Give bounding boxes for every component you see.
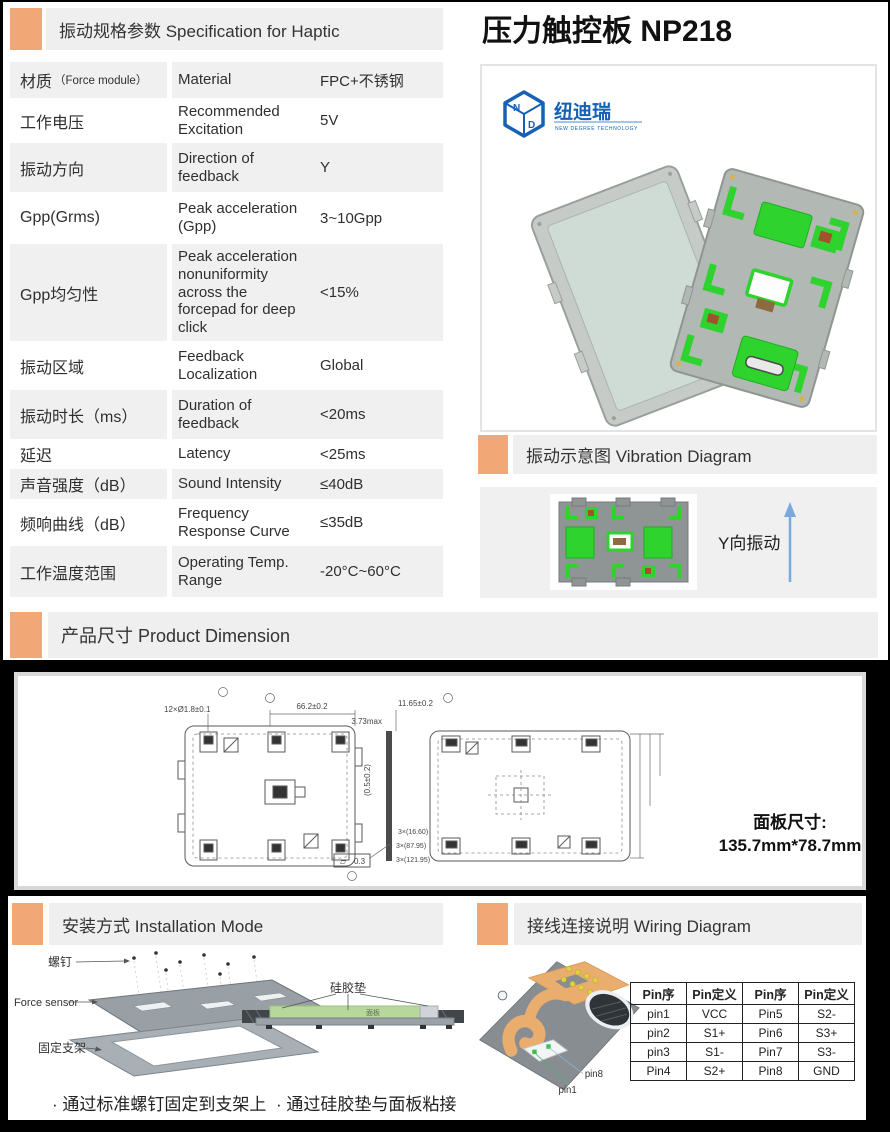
- pin-cell: VCC: [687, 1005, 743, 1024]
- silicone-bonding-image: [242, 1006, 464, 1029]
- pin-cell: GND: [799, 1062, 855, 1081]
- vibration-section-title: 振动示意图 Vibration Diagram: [513, 435, 877, 474]
- pin-col-header: Pin序: [743, 983, 799, 1005]
- company-logo: N D 纽迪瑞 NEW DEGREE TECHNOLOGY: [505, 92, 642, 136]
- spec-cn: 频响曲线（dB）: [20, 511, 136, 535]
- spec-value: 5V: [306, 112, 443, 129]
- datasheet-page: 振动规格参数 Specification for Haptic 材质（Force…: [0, 0, 890, 1132]
- dim-label: 3×(16.60): [398, 829, 428, 836]
- table-row: 延迟 Latency<25ms: [10, 439, 443, 469]
- panel-size-value: 135.7mm*78.7mm: [719, 836, 862, 855]
- accent-square: [10, 612, 42, 658]
- pin-cell: S3-: [799, 1043, 855, 1062]
- installation-caption-right: · 通过硅胶垫与面板粘接: [276, 1090, 456, 1115]
- spec-en: Peak acceleration (Gpp): [172, 200, 306, 235]
- pin8-label: pin8: [585, 1069, 603, 1080]
- installation-section-title: 安装方式 Installation Mode: [49, 903, 443, 945]
- spec-cn-note: （Force module）: [54, 72, 147, 88]
- spec-en: Recommended Excitation: [172, 103, 306, 138]
- spec-cn: Gpp均匀性: [20, 281, 98, 305]
- dimension-section-title: 产品尺寸 Product Dimension: [48, 612, 878, 658]
- spec-cn: 声音强度（dB）: [20, 472, 136, 496]
- spec-value: ≤35dB: [306, 514, 443, 531]
- pin-col-header: Pin定义: [799, 983, 855, 1005]
- accent-square: [10, 8, 42, 50]
- pin-definition-table: Pin序 Pin定义 Pin序 Pin定义 pin1 VCC Pin5 S2- …: [630, 982, 855, 1081]
- spec-value: FPC+不锈钢: [306, 70, 443, 91]
- pin-table-row: Pin4 S2+ Pin8 GND: [631, 1062, 855, 1081]
- spec-en: Duration of feedback: [172, 397, 306, 432]
- dim-label: 3.73max: [351, 717, 382, 726]
- pin-cell: S1+: [687, 1024, 743, 1043]
- spec-value: Global: [306, 357, 443, 374]
- pin-table-row: pin1 VCC Pin5 S2-: [631, 1005, 855, 1024]
- dimension-section-header: 产品尺寸 Product Dimension: [10, 612, 878, 658]
- dimension-drawing: 66.2±0.2 12×Ø1.8±0.1 3.73max (0.5±0.2) 1…: [18, 676, 862, 886]
- accent-square: [12, 903, 43, 945]
- pin-cell: Pin8: [743, 1062, 799, 1081]
- vibration-section-header: 振动示意图 Vibration Diagram: [478, 435, 877, 474]
- spec-cn: 振动方向: [20, 156, 84, 180]
- pin-cell: S2-: [799, 1005, 855, 1024]
- dim-label: 0.3: [354, 857, 366, 866]
- spec-cn: Gpp(Grms): [20, 209, 100, 227]
- pin-table-header-row: Pin序 Pin定义 Pin序 Pin定义: [631, 983, 855, 1005]
- bottom-sections: 安装方式 Installation Mode 接线连接说明 Wiring Dia…: [8, 896, 866, 1120]
- wiring-photo: pin8 pin1: [478, 960, 640, 1102]
- spec-value: 3~10Gpp: [306, 210, 443, 227]
- spec-en: Material: [172, 71, 306, 89]
- table-row: 频响曲线（dB） Frequency Response Curve≤35dB: [10, 499, 443, 546]
- bracket-label: 固定支架: [38, 1040, 86, 1055]
- pin-col-header: Pin序: [631, 983, 687, 1005]
- logo-en-text: NEW DEGREE TECHNOLOGY: [555, 126, 638, 132]
- spec-cn: 材质: [20, 68, 52, 92]
- spec-value: Y: [306, 159, 443, 176]
- table-row: 声音强度（dB） Sound Intensity≤40dB: [10, 469, 443, 499]
- table-row: Gpp均匀性 Peak acceleration nonuniformity a…: [10, 244, 443, 341]
- table-row: 工作温度范围 Operating Temp. Range-20°C~60°C: [10, 546, 443, 597]
- dim-label: 66.2±0.2: [296, 702, 328, 711]
- spec-en: Peak acceleration nonuniformity across t…: [172, 248, 306, 336]
- force-sensor-label: Force sensor: [14, 997, 79, 1009]
- logo-letter-d: D: [528, 120, 535, 131]
- spec-value: ≤40dB: [306, 476, 443, 493]
- table-row: 振动方向 Direction of feedbackY: [10, 143, 443, 192]
- product-image-box: N D 纽迪瑞 NEW DEGREE TECHNOLOGY: [480, 64, 877, 432]
- spec-en: Latency: [172, 445, 306, 463]
- dim-label: 3×(87.95): [396, 843, 426, 850]
- pin-cell: Pin6: [743, 1024, 799, 1043]
- dim-label: (0.5±0.2): [363, 764, 372, 796]
- pin-cell: S3+: [799, 1024, 855, 1043]
- spec-en: Frequency Response Curve: [172, 505, 306, 540]
- installation-diagram: 螺钉 Force sensor 固定支架 硅胶: [14, 948, 464, 1088]
- pin-cell: S1-: [687, 1043, 743, 1062]
- logo-cn-text: 纽迪瑞: [554, 100, 611, 123]
- spec-value: -20°C~60°C: [306, 563, 443, 580]
- dimension-drawing-box: 66.2±0.2 12×Ø1.8±0.1 3.73max (0.5±0.2) 1…: [14, 672, 866, 890]
- table-row: 材质（Force module） MaterialFPC+不锈钢: [10, 62, 443, 98]
- wiring-section-title: 接线连接说明 Wiring Diagram: [514, 903, 862, 945]
- table-row: 工作电压 Recommended Excitation5V: [10, 98, 443, 143]
- y-direction-arrow-icon: [784, 502, 796, 582]
- spec-en: Feedback Localization: [172, 348, 306, 383]
- dim-label: 11.65±0.2: [398, 699, 433, 708]
- accent-square: [478, 435, 508, 474]
- logo-letter-n: N: [513, 103, 520, 114]
- pin-cell: pin3: [631, 1043, 687, 1062]
- pin-cell: Pin4: [631, 1062, 687, 1081]
- pin-col-header: Pin定义: [687, 983, 743, 1005]
- spec-value: <20ms: [306, 406, 443, 423]
- vibration-diagram-image: Y向振动: [480, 487, 877, 598]
- spec-table: 材质（Force module） MaterialFPC+不锈钢 工作电压 Re…: [10, 62, 443, 597]
- pin-cell: Pin7: [743, 1043, 799, 1062]
- panel-size-label: 面板尺寸:: [753, 812, 827, 832]
- wiring-section-header: 接线连接说明 Wiring Diagram: [477, 903, 862, 945]
- silicone-pad-label: 硅胶垫: [330, 980, 366, 995]
- spec-cn: 振动时长（ms）: [20, 403, 137, 427]
- pin-table-row: pin2 S1+ Pin6 S3+: [631, 1024, 855, 1043]
- screws-image: [132, 951, 256, 976]
- spec-cn: 延迟: [20, 442, 52, 466]
- pin1-label: pin1: [559, 1085, 577, 1096]
- screw-label: 螺钉: [48, 955, 72, 969]
- table-row: 振动时长（ms） Duration of feedback<20ms: [10, 390, 443, 439]
- spec-value: <25ms: [306, 446, 443, 463]
- pin-cell: S2+: [687, 1062, 743, 1081]
- spec-cn: 工作温度范围: [20, 560, 116, 584]
- spec-en: Sound Intensity: [172, 475, 306, 493]
- pin-cell: pin2: [631, 1024, 687, 1043]
- spec-cn: 振动区域: [20, 354, 84, 378]
- table-row: 振动区域 Feedback LocalizationGlobal: [10, 341, 443, 390]
- product-render-image: N D 纽迪瑞 NEW DEGREE TECHNOLOGY: [482, 66, 875, 430]
- spec-en: Operating Temp. Range: [172, 554, 306, 589]
- spec-section-title: 振动规格参数 Specification for Haptic: [46, 8, 443, 50]
- spec-section-header: 振动规格参数 Specification for Haptic: [10, 8, 443, 50]
- dim-label: 12×Ø1.8±0.1: [164, 705, 211, 714]
- spec-en: Direction of feedback: [172, 150, 306, 185]
- panel-label: 面板: [366, 1008, 380, 1017]
- dim-label: 3×(121.95): [396, 857, 430, 864]
- product-title: 压力触控板 NP218: [482, 6, 882, 50]
- vibration-direction-label: Y向振动: [718, 534, 780, 553]
- flatness-symbol: ▱: [340, 857, 347, 866]
- spec-cn: 工作电压: [20, 109, 84, 133]
- pin-cell: pin1: [631, 1005, 687, 1024]
- vibration-diagram-box: Y向振动: [480, 487, 877, 598]
- accent-square: [477, 903, 508, 945]
- installation-caption-left: · 通过标准螺钉固定到支架上: [52, 1090, 266, 1115]
- installation-section-header: 安装方式 Installation Mode: [12, 903, 443, 945]
- spec-value: <15%: [306, 284, 443, 301]
- pin-table-row: pin3 S1- Pin7 S3-: [631, 1043, 855, 1062]
- table-row: Gpp(Grms) Peak acceleration (Gpp)3~10Gpp: [10, 192, 443, 244]
- pin-cell: Pin5: [743, 1005, 799, 1024]
